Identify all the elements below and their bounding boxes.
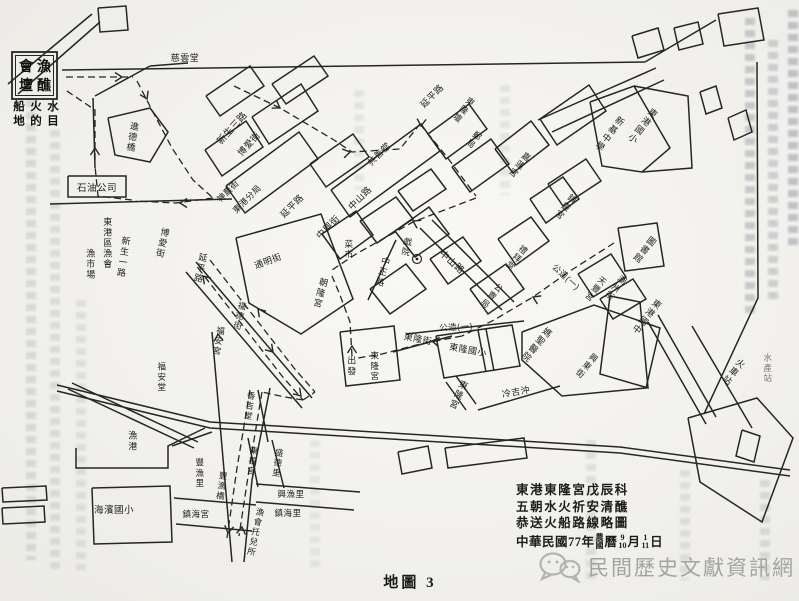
map-title-line: 東港東隆宮戊辰科 bbox=[516, 482, 663, 499]
street-line bbox=[398, 446, 432, 474]
route-arrow-icon bbox=[417, 119, 427, 127]
street-line bbox=[700, 86, 722, 114]
label-gongshan-hall: 共善堂 bbox=[365, 140, 393, 168]
date-li: 曆 bbox=[605, 534, 618, 551]
label-xiangji-hall: 香吉堂 bbox=[243, 390, 256, 421]
street-line bbox=[76, 428, 205, 468]
label-fuan-hall: 福安堂 bbox=[157, 362, 166, 392]
date-gregorian: 國 bbox=[596, 542, 604, 551]
label-yanping-rd-3: 延平路 bbox=[418, 82, 446, 110]
label-library: 圖書館 bbox=[632, 235, 659, 265]
map-title-block: 東港東隆宮戊辰科 五朝水火祈安清醮 恭送火船路線略圖 中華民國77年 農 國 曆… bbox=[516, 482, 663, 551]
theater-circle-symbol bbox=[416, 258, 419, 261]
altar-box-left-column: 會壇 bbox=[18, 58, 34, 93]
street-line bbox=[590, 86, 670, 172]
label-haibin-elementary: 海濱國小 bbox=[94, 504, 134, 516]
label-fude-st: 福德街 bbox=[232, 300, 247, 331]
figure-caption: 地圖 3 bbox=[355, 571, 465, 592]
map-canvas: 慈雲堂新生三路博愛街進德橋石油公司東港區漁會漁市場新生一路博愛街延平路神農街東港… bbox=[0, 0, 799, 601]
procession-route bbox=[64, 77, 614, 538]
label-lengjichong: 冷吉沖 bbox=[501, 384, 531, 400]
watermark-text: 民間歷史文獻資訊網 bbox=[588, 552, 795, 582]
map-title-line: 五朝水火祈安清醮 bbox=[516, 499, 663, 516]
street-line bbox=[98, 6, 128, 32]
label-donggang-elementary: 東港國小 bbox=[626, 106, 660, 146]
label-shuichan-station: 水產站 bbox=[763, 353, 772, 383]
label-xinji-middle-school: 新基中學 bbox=[593, 114, 627, 154]
street-line bbox=[688, 398, 793, 522]
date-calendar-stack: 農 國 bbox=[596, 534, 604, 551]
label-donglong-temple-1: 東隆宮 bbox=[370, 351, 379, 381]
label-train-station: 火車站 bbox=[721, 357, 748, 387]
street-line bbox=[736, 430, 760, 462]
street-line bbox=[272, 56, 328, 104]
label-shengde-borough: 盛德里 bbox=[271, 447, 284, 478]
map-date: 中華民國77年 農 國 曆 9 10 月 1 11 日 bbox=[516, 534, 663, 551]
watermark: 民間歷史文獻資訊網 bbox=[538, 551, 795, 583]
street-line bbox=[310, 134, 369, 187]
label-xingdong-st: 興東街 bbox=[574, 351, 600, 380]
street-line bbox=[186, 272, 302, 408]
label-theater: 戲院 bbox=[401, 236, 413, 257]
street-line bbox=[718, 8, 764, 46]
route-arrow-icon bbox=[293, 388, 304, 399]
date-era: 中華民國77年 bbox=[516, 534, 595, 551]
street-line bbox=[256, 484, 360, 492]
label-departure-point: 出發 bbox=[347, 355, 357, 377]
label-zhongxing-st: 中興街 bbox=[314, 213, 342, 241]
label-zhongshan-rd-1: 中山路 bbox=[346, 184, 374, 212]
label-public-rd-1-diag: 公造(一) bbox=[550, 262, 582, 292]
label-zhenhai-borough: 鎮海里 bbox=[274, 508, 301, 518]
street-line bbox=[206, 66, 264, 116]
label-zhongzheng-rd: 中正路 bbox=[374, 255, 392, 289]
label-vegetable-market: 菜市 bbox=[344, 239, 353, 259]
scanned-map-page: 慈雲堂新生三路博愛街進德橋石油公司東港區漁會漁市場新生一路博愛街延平路神農街東港… bbox=[0, 0, 799, 601]
label-fengyu-borough: 豐漁里 bbox=[195, 458, 204, 488]
label-fuan-temple: 福安宮 bbox=[212, 325, 226, 356]
fireboat-destination-column: 火的 bbox=[30, 100, 42, 128]
label-donglong-elementary: 東隆國小 bbox=[448, 341, 487, 358]
label-boai-st-1: 博愛街 bbox=[235, 129, 262, 158]
label-tongming-st: 通明街 bbox=[253, 250, 284, 270]
street-line bbox=[256, 502, 354, 510]
route-segment bbox=[137, 81, 213, 198]
date-day-gregorian: 11 bbox=[642, 542, 650, 551]
label-donglong-temple-2: 東隆宮 bbox=[448, 378, 470, 411]
route-segment bbox=[303, 392, 315, 400]
date-day-stack: 1 11 bbox=[642, 534, 650, 551]
street-line bbox=[252, 84, 318, 144]
label-yanping-rd-1: 延平路 bbox=[278, 192, 306, 220]
label-xingyu-borough: 興漁里 bbox=[277, 489, 304, 499]
label-monopoly-bureau: 公賣局 bbox=[479, 281, 505, 310]
label-zhenhai-temple: 鎮海宮 bbox=[182, 509, 209, 519]
label-shennong-st: 神農街 bbox=[215, 178, 241, 204]
street-line bbox=[398, 169, 446, 211]
label-ciyuntang: 慈雲堂 bbox=[171, 52, 200, 63]
street-line bbox=[258, 390, 268, 442]
street-line bbox=[648, 322, 706, 424]
date-ri: 日 bbox=[650, 534, 663, 551]
street-lines bbox=[2, 6, 793, 562]
route-arrow-icon bbox=[342, 148, 351, 158]
route-arrow-icon bbox=[140, 91, 151, 101]
label-xinsheng-1-rd: 新生一路 bbox=[116, 235, 131, 279]
route-segment bbox=[64, 89, 95, 160]
street-line bbox=[57, 391, 790, 476]
street-line bbox=[728, 110, 752, 140]
route-segment bbox=[234, 86, 420, 152]
label-jinde-bridge: 進德橋 bbox=[126, 120, 141, 153]
label-fish-market: 漁市場 bbox=[86, 247, 96, 279]
label-fishing-harbor: 漁港 bbox=[128, 430, 138, 452]
date-month-gregorian: 10 bbox=[619, 542, 627, 551]
label-donggang-fishery-assoc: 東港區漁會 bbox=[103, 216, 113, 269]
map-labels: 慈雲堂新生三路博愛街進德橋石油公司東港區漁會漁市場新生一路博愛街延平路神農街東港… bbox=[77, 52, 773, 557]
label-chaolong-temple: 朝隆宮 bbox=[312, 277, 329, 310]
street-line bbox=[2, 486, 47, 502]
label-boai-st-2: 博愛街 bbox=[155, 226, 171, 259]
chat-bubbles-logo-icon bbox=[538, 551, 582, 583]
fireboat-destination-column: 船地 bbox=[13, 99, 25, 128]
label-jialian-temple: 嘉蓮宮 bbox=[507, 150, 533, 179]
street-line bbox=[2, 506, 45, 524]
street-line bbox=[658, 315, 716, 417]
label-public-rd-1: 公造(一) bbox=[439, 321, 473, 333]
street-line bbox=[452, 139, 509, 192]
label-oil-company: 石油公司 bbox=[77, 182, 117, 194]
date-month-stack: 9 10 bbox=[619, 534, 627, 551]
route-segment bbox=[198, 268, 303, 400]
label-zhongshan-rd-2: 中山路 bbox=[437, 248, 467, 277]
label-post-office: 郵局 bbox=[464, 129, 483, 150]
street-line bbox=[150, 63, 188, 66]
label-dongfu-temple: 東福宮 bbox=[246, 445, 259, 476]
date-yue: 月 bbox=[628, 534, 641, 551]
street-line bbox=[692, 326, 752, 428]
map-title-line: 恭送火船路線略圖 bbox=[516, 515, 663, 532]
street-line bbox=[498, 217, 549, 265]
fireboat-destination-column: 水目 bbox=[47, 99, 59, 128]
